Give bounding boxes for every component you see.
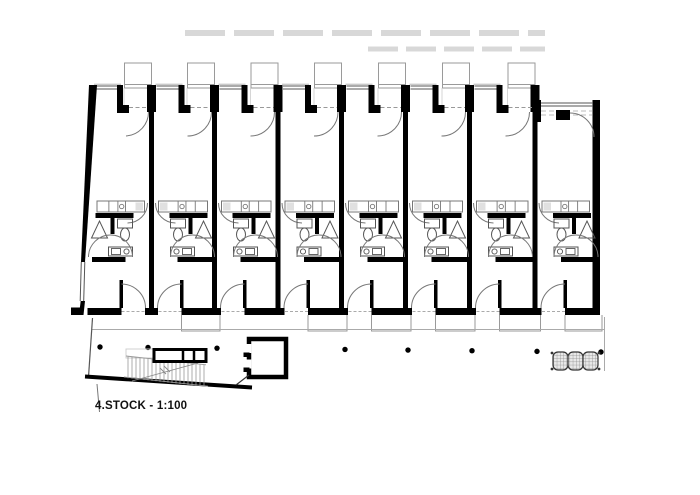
unit-4-interior (276, 201, 345, 315)
unit-2-interior (149, 201, 217, 315)
upper-floor-projection (185, 33, 545, 49)
unit-6-top (401, 63, 474, 136)
bike-rack (551, 352, 601, 371)
party-walls (149, 85, 600, 315)
unit-3-top (210, 63, 283, 136)
left-exterior-wall (71, 85, 97, 315)
unit-4-top (274, 63, 347, 136)
unit-1-interior (88, 201, 155, 315)
floor-plan-drawing: 4.STOCK - 1:100 (0, 0, 700, 495)
unit-2-top (147, 63, 219, 136)
floor-plan-page: 4.STOCK - 1:100 (0, 0, 700, 495)
unit-8-top (533, 100, 600, 137)
unit-5-interior (339, 201, 408, 315)
unit-5-top (337, 63, 410, 136)
unit-7-top (465, 63, 540, 136)
floor-plan-label: 4.STOCK - 1:100 (95, 400, 187, 412)
elevator-shaft (236, 339, 286, 385)
unit-8-interior (533, 201, 600, 315)
unit-3-interior (212, 201, 281, 315)
plan-graphics (71, 33, 605, 412)
unit-7-interior (467, 201, 538, 315)
lower-balconies (182, 315, 603, 331)
unit-1-top (94, 63, 156, 136)
unit-6-interior (403, 201, 472, 315)
